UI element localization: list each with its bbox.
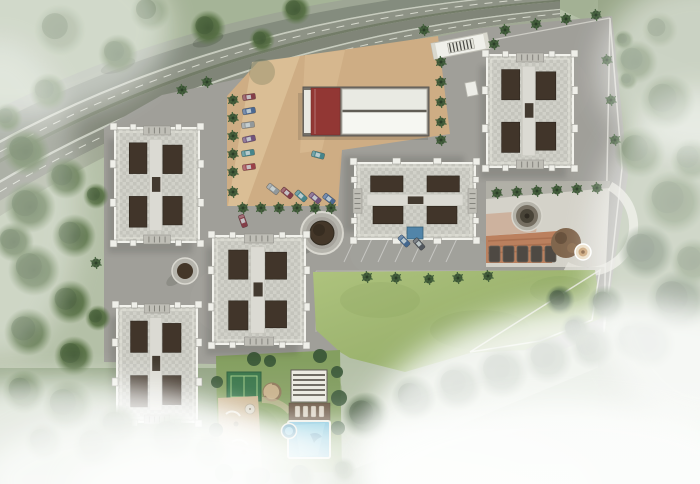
site-plan-rendering bbox=[0, 0, 700, 484]
fog-overlay bbox=[0, 0, 700, 484]
color-grade bbox=[0, 0, 700, 484]
aerial-render-canvas bbox=[0, 0, 700, 484]
